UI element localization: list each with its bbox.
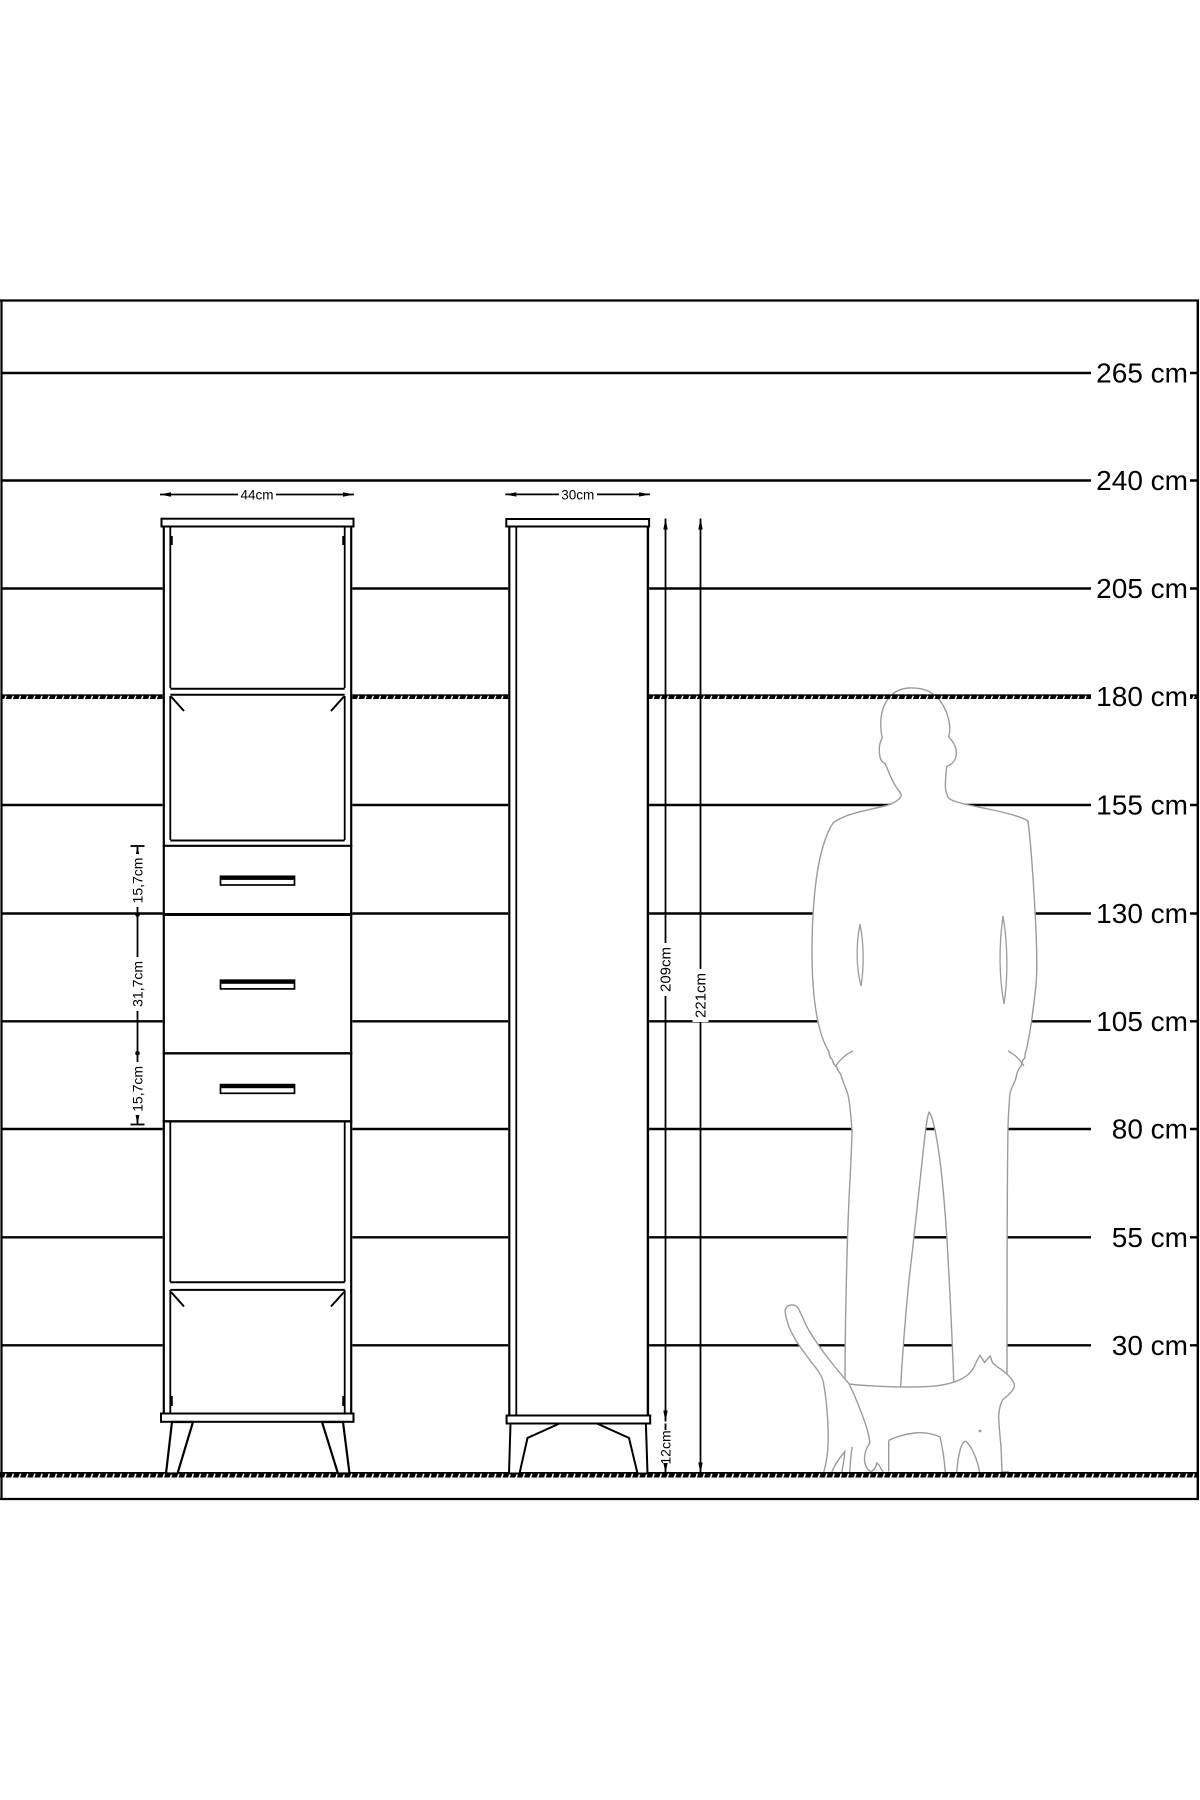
svg-text:30cm: 30cm (561, 487, 594, 502)
svg-text:30 cm: 30 cm (1112, 1330, 1188, 1361)
svg-text:55 cm: 55 cm (1112, 1222, 1188, 1253)
svg-text:12cm: 12cm (658, 1430, 674, 1464)
svg-text:15,7cm: 15,7cm (130, 858, 146, 904)
svg-text:15,7cm: 15,7cm (130, 1066, 146, 1112)
svg-text:240 cm: 240 cm (1096, 465, 1188, 496)
svg-text:180 cm: 180 cm (1096, 681, 1188, 712)
svg-text:31,7cm: 31,7cm (130, 961, 146, 1007)
svg-text:155 cm: 155 cm (1096, 790, 1188, 821)
svg-text:44cm: 44cm (240, 488, 273, 503)
svg-text:221cm: 221cm (693, 973, 710, 1018)
svg-text:265 cm: 265 cm (1096, 358, 1188, 389)
svg-text:209cm: 209cm (658, 947, 675, 992)
svg-text:205 cm: 205 cm (1096, 573, 1188, 604)
svg-text:80 cm: 80 cm (1112, 1114, 1188, 1145)
svg-text:105 cm: 105 cm (1096, 1006, 1188, 1037)
svg-text:130 cm: 130 cm (1096, 898, 1188, 929)
